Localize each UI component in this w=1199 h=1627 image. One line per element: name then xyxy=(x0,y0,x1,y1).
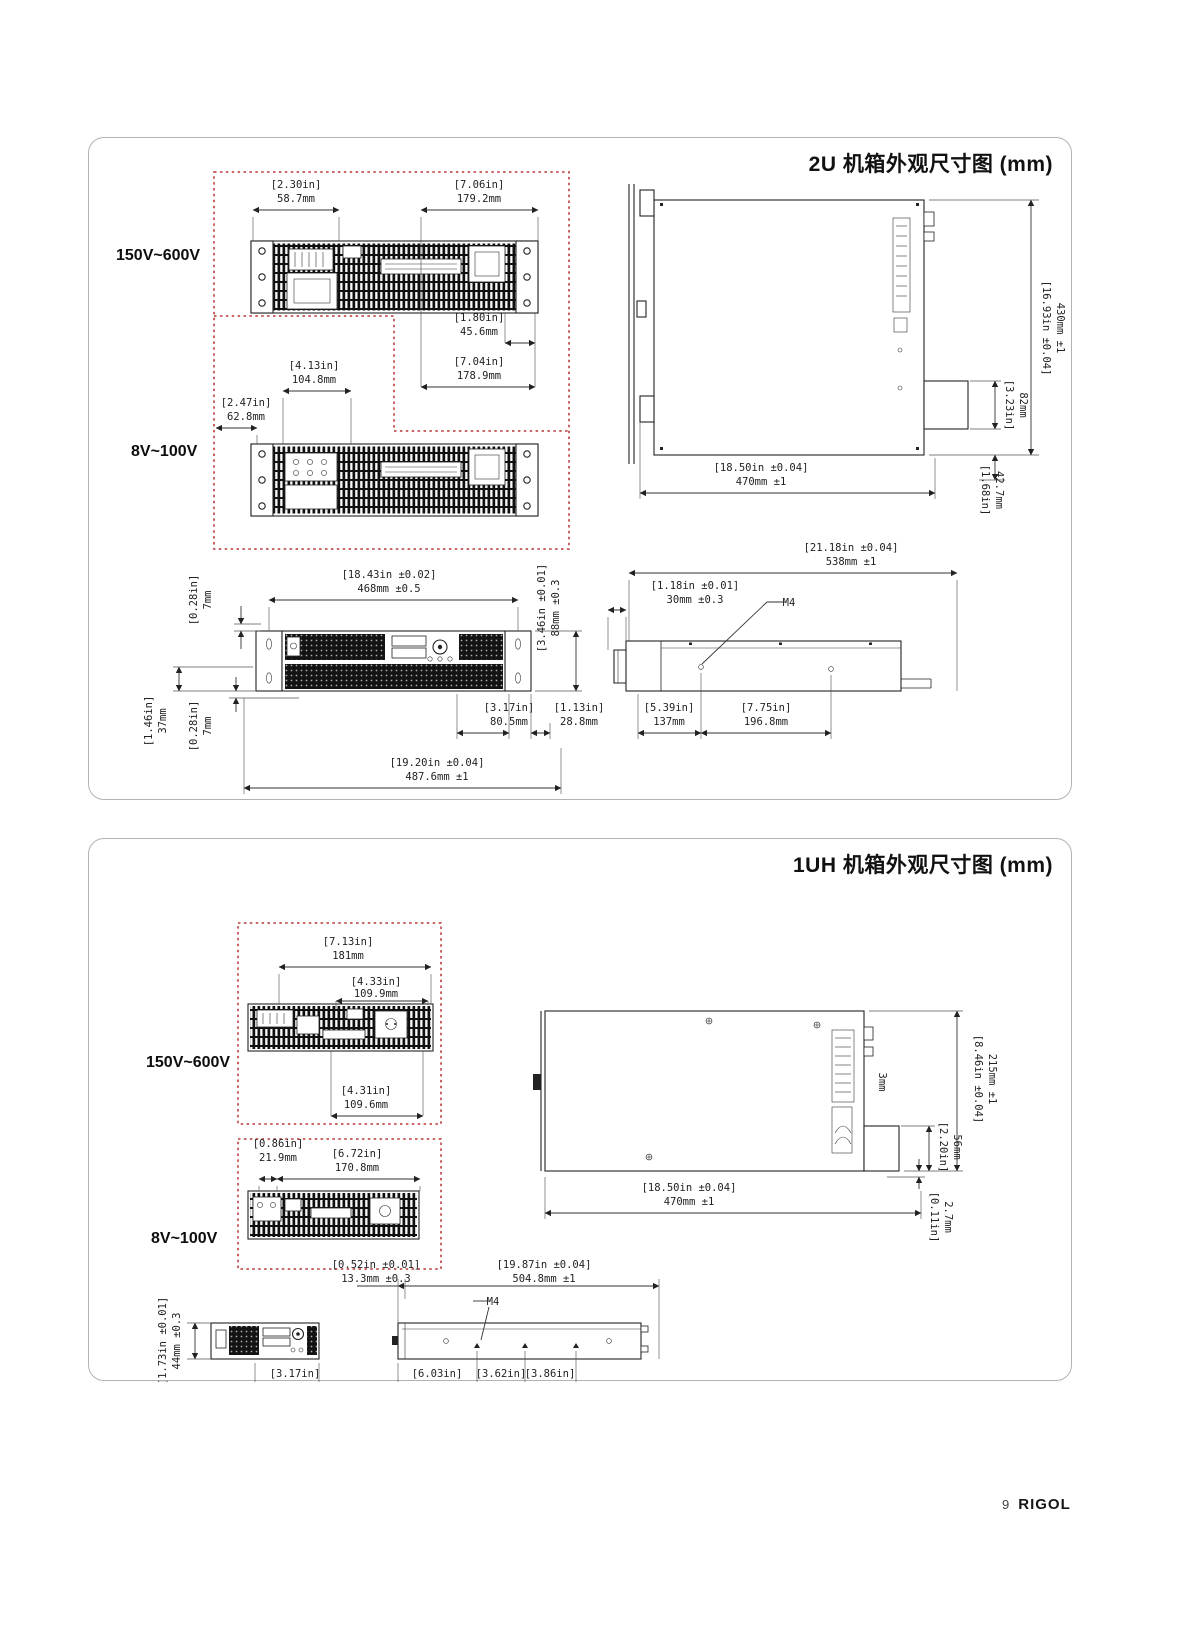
dim-front-ear-bottom-mm: 7mm xyxy=(202,717,214,736)
dim-rear-top-right-in: [7.06in] xyxy=(454,179,505,191)
dim-front-right-mm: 28.8mm xyxy=(560,716,598,728)
page-footer: 9RIGOL xyxy=(1002,1496,1071,1513)
dim-top-height-mm: 430mm ±1 xyxy=(1054,303,1066,354)
dim-rear-sub1-in: [1.80in] xyxy=(454,312,505,324)
dim-rear2-left-mm: 62.8mm xyxy=(227,411,265,423)
dim-front-lcd-in: [3.17in] xyxy=(270,1368,321,1380)
rear2-dimensions: [4.13in] 104.8mm [2.47in] 62.8mm xyxy=(216,360,351,444)
rear-view-150v-600v xyxy=(251,241,538,313)
dim-rear-conn-top-in: [4.33in] xyxy=(351,976,402,988)
dim-rear2-top-mm: 104.8mm xyxy=(292,374,336,386)
panel-1uh-dimension-drawing: 1UH 机箱外观尺寸图 (mm) 150V~600V 8V~100V xyxy=(88,838,1072,1381)
dim-rear2-top-in: [4.13in] xyxy=(289,360,340,372)
dim-rear-top-right-mm: 179.2mm xyxy=(457,193,501,205)
side-view-1uh xyxy=(392,1323,648,1359)
dim-top-width-in: [18.50in ±0.04] xyxy=(642,1182,737,1194)
voltage-range-low-label: 8V~100V xyxy=(151,1230,218,1247)
dim-rear-conn-bottom-in: [4.31in] xyxy=(341,1085,392,1097)
dim-rear2-width-in: [6.72in] xyxy=(332,1148,383,1160)
dim-side-hole1-mm: 137mm xyxy=(653,716,685,728)
dim-top-height-in: [16.93in ±0.04] xyxy=(1040,281,1052,376)
dim-front-ear-top-mm: 7mm xyxy=(202,591,214,610)
dim-front-ear-bottom-in: [0.28in] xyxy=(188,701,200,752)
dim-front-total-in: [19.20in ±0.04] xyxy=(390,757,485,769)
dim-front-half-mm: 37mm xyxy=(157,708,169,733)
rear-view-150v-600v xyxy=(248,1004,433,1051)
dim-side-depth-in: [19.87in ±0.04] xyxy=(497,1259,592,1271)
dim-rear-sub2-mm: 178.9mm xyxy=(457,370,501,382)
dim-top-step-in: [3.23in] xyxy=(1003,380,1015,431)
dim-side-hole1-in: [6.03in] xyxy=(412,1368,463,1380)
dim-front-height-mm: 44mm ±0.3 xyxy=(171,1313,183,1370)
dim-side-depth-mm: 504.8mm ±1 xyxy=(512,1273,575,1285)
dim-rear2-left-in: [2.47in] xyxy=(221,397,272,409)
dim-top-foot-mm: 2.7mm xyxy=(942,1201,954,1233)
dim-top-height-in: [8.46in ±0.04] xyxy=(972,1035,984,1124)
front-view-1uh xyxy=(211,1323,319,1359)
dim-side-handle-mm: 30mm ±0.3 xyxy=(667,594,724,606)
dim-top-width-mm: 470mm ±1 xyxy=(664,1196,715,1208)
dim-rear-top-left-in: [2.30in] xyxy=(271,179,322,191)
dim-side-depth-mm: 538mm ±1 xyxy=(826,556,877,568)
drawing-2u: 150V~600V 8V~100V [2.30in] 58.7mm [7.06i… xyxy=(89,138,1073,801)
voltage-range-low-label: 8V~100V xyxy=(131,443,198,460)
dim-side-front-mm: 13.3mm ±0.3 xyxy=(341,1273,411,1285)
dim-rear-sub1-mm: 45.6mm xyxy=(460,326,498,338)
dim-rear2-left-mm: 21.9mm xyxy=(259,1152,297,1164)
dim-top-step-mm: 56mm xyxy=(951,1134,963,1159)
dim-side-depth-in: [21.18in ±0.04] xyxy=(804,542,899,554)
voltage-range-high-label: 150V~600V xyxy=(116,247,200,264)
dim-top-step-mm: 82mm xyxy=(1017,392,1029,417)
dim-front-height-mm: 88mm ±0.3 xyxy=(550,580,562,637)
dim-rear-conn-bottom-mm: 109.6mm xyxy=(344,1099,388,1111)
dim-top-step-in: [2.20in] xyxy=(937,1122,949,1173)
dim-rear-width-in: [7.13in] xyxy=(323,936,374,948)
side-view-2u xyxy=(614,641,931,691)
front-view-2u xyxy=(256,631,531,691)
dim-side-hole1-in: [5.39in] xyxy=(644,702,695,714)
dim-side-handle-in: [1.18in ±0.01] xyxy=(651,580,740,592)
rear-view-8v-100v xyxy=(251,444,538,516)
dim-top-width-mm: 470mm ±1 xyxy=(736,476,787,488)
dim-top-height-mm: 215mm ±1 xyxy=(986,1054,998,1105)
dim-top-foot-in: [0.11in] xyxy=(928,1192,940,1243)
dim-rear2-left-in: [0.86in] xyxy=(253,1138,304,1150)
top-view-2u xyxy=(629,184,968,464)
dim-side-front-in: [0.52in ±0.01] xyxy=(332,1259,421,1271)
dim-rear-width-mm: 181mm xyxy=(332,950,364,962)
voltage-range-high-label: 150V~600V xyxy=(146,1054,230,1071)
dim-front-width-in: [18.43in ±0.02] xyxy=(342,569,437,581)
screw-callout-m4: M4 xyxy=(783,597,796,609)
dim-front-total-mm: 487.6mm ±1 xyxy=(405,771,468,783)
dim-top-gap: 3mm xyxy=(876,1073,888,1092)
screw-callout-m4: M4 xyxy=(487,1296,500,1308)
dim-front-height-in: [1.73in ±0.01] xyxy=(157,1297,169,1382)
dim-front-right-in: [1.13in] xyxy=(554,702,605,714)
side-view-dimensions: [0.52in ±0.01] 13.3mm ±0.3 [19.87in ±0.0… xyxy=(332,1259,659,1382)
dim-rear2-width-mm: 170.8mm xyxy=(335,1162,379,1174)
dim-side-hole2-in: [7.75in] xyxy=(741,702,792,714)
dim-top-foot-in: [1.68in] xyxy=(979,465,991,516)
brand-logo: RIGOL xyxy=(1018,1496,1071,1513)
dim-side-hole2-in: [3.62in] xyxy=(476,1368,527,1380)
panel-2u-dimension-drawing: 2U 机箱外观尺寸图 (mm) 150V~600V 8V~100V xyxy=(88,137,1072,800)
page-number: 9 xyxy=(1002,1497,1009,1512)
drawing-1uh: 150V~600V 8V~100V [7.13in] 181mm [4.33in… xyxy=(89,839,1073,1382)
rear-view-8v-100v xyxy=(248,1191,419,1239)
dim-front-width-mm: 468mm ±0.5 xyxy=(357,583,420,595)
dim-side-hole2-mm: 196.8mm xyxy=(744,716,788,728)
dim-rear-conn-top-mm: 109.9mm xyxy=(354,988,398,1000)
dim-front-height-in: [3.46in ±0.01] xyxy=(536,564,548,653)
dim-rear-top-left-mm: 58.7mm xyxy=(277,193,315,205)
dim-top-width-in: [18.50in ±0.04] xyxy=(714,462,809,474)
dim-front-ear-top-in: [0.28in] xyxy=(188,575,200,626)
top-view-1uh: 3mm xyxy=(533,1011,899,1171)
rear2-dimensions: [0.86in] 21.9mm [6.72in] 170.8mm xyxy=(253,1138,420,1191)
dim-rear-sub2-in: [7.04in] xyxy=(454,356,505,368)
dim-side-hole3-in: [3.86in] xyxy=(525,1368,576,1380)
dim-top-foot-mm: 42.7mm xyxy=(993,471,1005,509)
dim-front-half-in: [1.46in] xyxy=(143,696,155,747)
